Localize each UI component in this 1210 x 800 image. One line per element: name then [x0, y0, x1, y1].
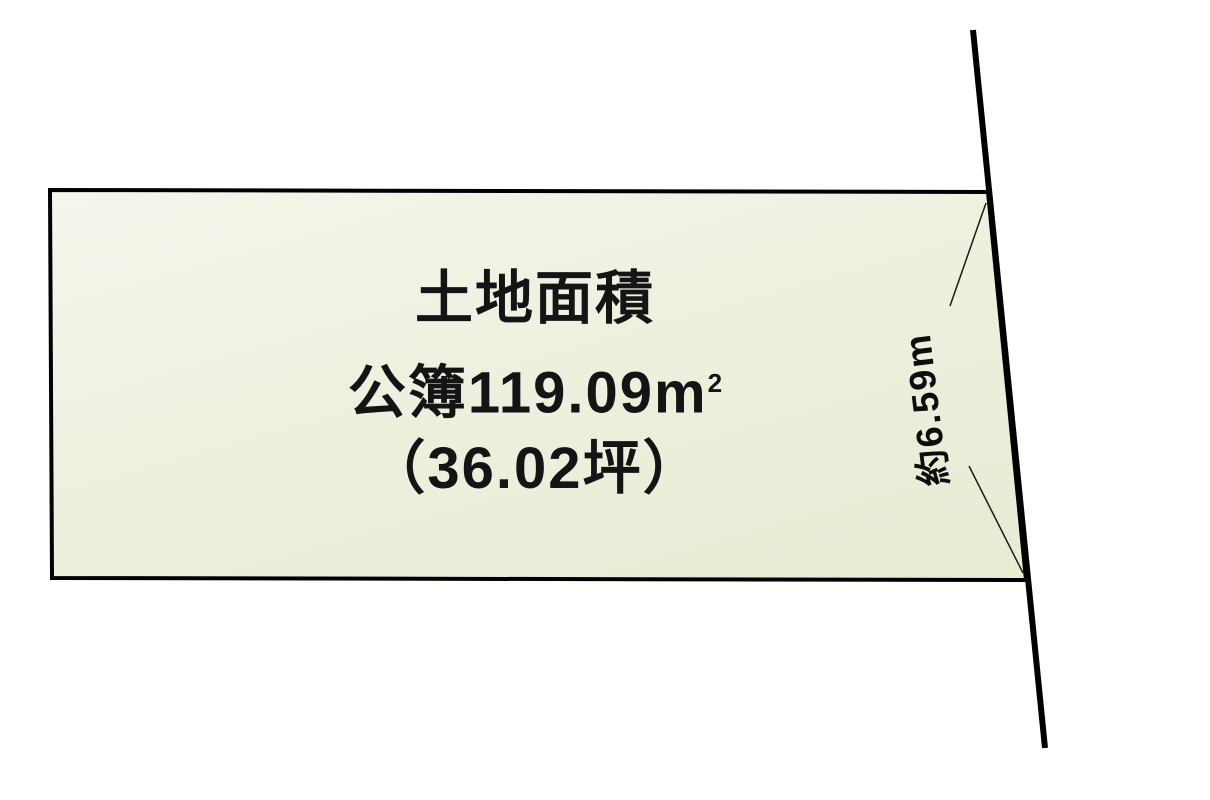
parcel-label: 土地面積 公簿119.09m2 （36.02坪）	[130, 256, 940, 511]
site-plan-canvas: 土地面積 公簿119.09m2 （36.02坪） 約6.59m	[0, 0, 1210, 800]
area-unit-superscript: 2	[708, 368, 723, 398]
parcel-title: 土地面積	[130, 256, 940, 341]
parcel-area-line: 公簿119.09m2	[130, 341, 940, 426]
parcel-area-registered: 公簿119.09m	[348, 360, 708, 425]
parcel-area-tsubo: （36.02坪）	[130, 426, 940, 511]
